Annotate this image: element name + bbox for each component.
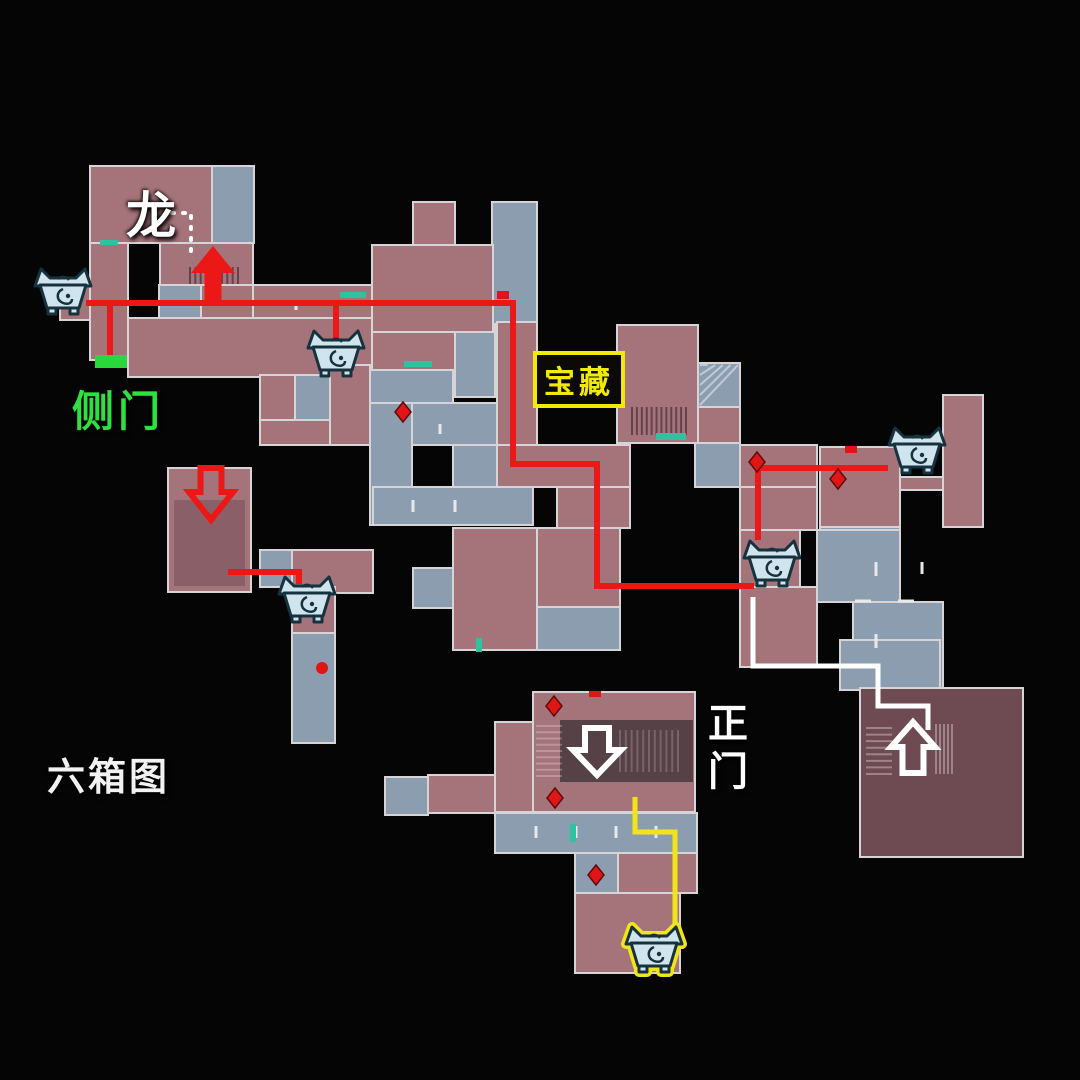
red-door-marker xyxy=(497,291,509,299)
map-room xyxy=(372,245,493,332)
map-room xyxy=(495,722,533,812)
door-marker xyxy=(404,361,432,367)
map-room xyxy=(740,487,817,530)
map-room xyxy=(618,853,697,893)
door-marker xyxy=(656,433,686,440)
map-room xyxy=(373,487,533,525)
door-marker xyxy=(476,638,482,652)
map-room xyxy=(455,325,495,397)
map-room xyxy=(428,775,495,813)
map-room xyxy=(557,487,630,528)
map-room xyxy=(453,528,537,650)
map-canvas xyxy=(0,0,1080,1080)
map-room xyxy=(413,568,453,608)
map-room xyxy=(260,375,295,420)
map-room xyxy=(695,443,740,487)
map-room xyxy=(212,166,254,243)
map-room xyxy=(537,607,620,650)
map-room xyxy=(817,530,900,602)
map-room xyxy=(820,447,900,527)
map-room xyxy=(453,445,497,487)
map-room xyxy=(698,407,740,443)
map-room xyxy=(413,202,455,247)
red-dot-marker xyxy=(316,662,328,674)
map-room xyxy=(90,166,212,243)
map-room xyxy=(412,403,497,445)
map-room xyxy=(292,633,335,743)
map-room xyxy=(385,777,428,815)
map-room xyxy=(860,688,1023,857)
map-room xyxy=(900,477,943,490)
door-marker xyxy=(570,824,576,842)
game-map: 龙 侧门 宝藏 正门 六箱图 xyxy=(0,0,1080,1080)
red-door-marker xyxy=(589,691,601,697)
map-room xyxy=(943,395,983,527)
map-room xyxy=(537,528,620,607)
treasure-chest-icon-highlighted xyxy=(626,927,682,972)
door-marker xyxy=(100,240,118,245)
door-marker xyxy=(340,292,366,298)
side-door-marker xyxy=(95,355,127,368)
red-door-marker xyxy=(845,446,857,453)
